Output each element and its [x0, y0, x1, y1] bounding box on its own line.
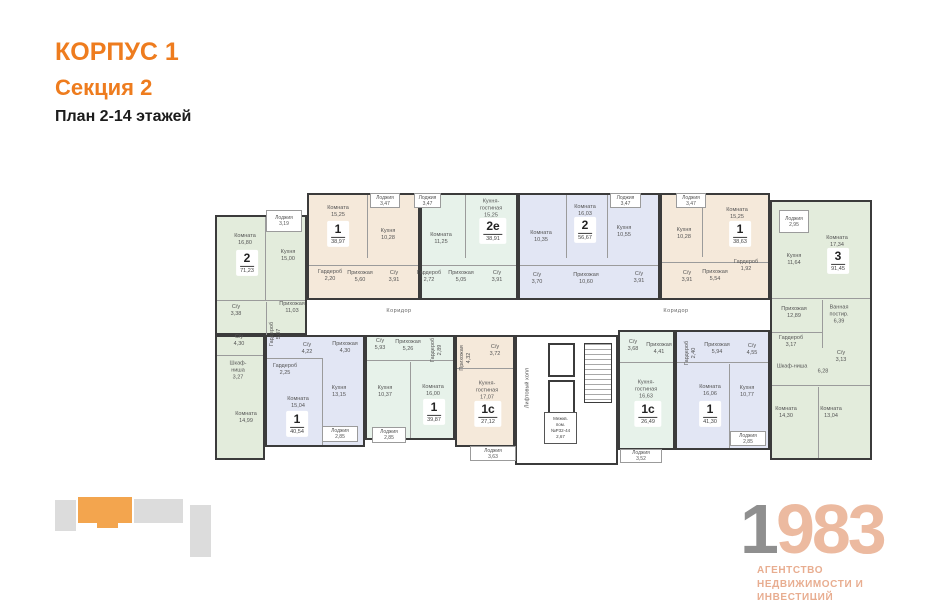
- logo-year: 1983: [740, 494, 925, 564]
- floorplan-page: КОРПУС 1 Секция 2 План 2-14 этажей Лифто…: [0, 0, 941, 600]
- logo-realestate-line: НЕДВИЖИМОСТИ И ИНВЕСТИЦИЙ: [757, 578, 925, 600]
- minimap-block: [55, 500, 76, 531]
- agency-logo: 1983 АГЕНТСТВО НЕДВИЖИМОСТИ И ИНВЕСТИЦИЙ: [740, 494, 925, 600]
- logo-year-digits-983: 983: [776, 490, 884, 568]
- logo-year-digit-1: 1: [740, 490, 776, 568]
- minimap-active-section[interactable]: [78, 497, 132, 523]
- minimap-block: [134, 499, 183, 523]
- minimap-active-section[interactable]: [97, 522, 118, 528]
- minimap-block: [190, 505, 211, 557]
